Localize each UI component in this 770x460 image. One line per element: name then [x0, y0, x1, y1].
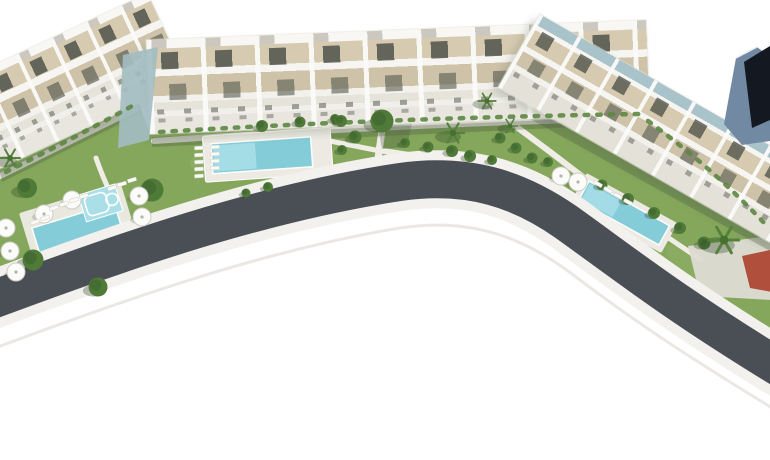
tree [345, 131, 362, 144]
hedge-row [160, 114, 640, 132]
sun-lounger [210, 159, 219, 163]
tree [484, 155, 497, 165]
sun-lounger [194, 160, 203, 164]
sun-lounger [210, 145, 219, 149]
tree [491, 133, 505, 144]
tree [11, 178, 37, 198]
sun-umbrella [0, 219, 15, 237]
tree [260, 182, 273, 192]
sun-umbrella [0, 242, 19, 260]
hedge-row [6, 106, 132, 172]
palm-tree [435, 124, 464, 144]
tree [540, 157, 553, 167]
tree [364, 110, 394, 133]
teal-wall [118, 47, 158, 148]
palm-tree [497, 119, 517, 133]
tree [419, 142, 433, 153]
sun-lounger [194, 167, 203, 171]
tree [252, 120, 268, 132]
sun-lounger [107, 185, 117, 191]
sun-lounger [613, 192, 623, 200]
sun-umbrella [549, 167, 570, 185]
palm-tree [700, 227, 739, 253]
sun-lounger [210, 152, 219, 156]
tree [397, 138, 410, 148]
tree [507, 143, 521, 154]
tree [644, 207, 660, 219]
sun-lounger [49, 205, 59, 211]
tree [442, 145, 458, 157]
sun-lounger [194, 153, 203, 157]
tree [523, 153, 537, 164]
tree [83, 278, 108, 297]
sun-lounger [210, 166, 219, 170]
corner-tower [724, 46, 770, 145]
sun-lounger [79, 193, 89, 199]
tree [460, 150, 476, 162]
palm-tree [473, 93, 496, 109]
sun-lounger [117, 181, 127, 187]
tree [239, 189, 251, 198]
sun-lounger [30, 219, 40, 225]
sun-lounger [127, 177, 137, 183]
tree [670, 222, 686, 234]
tree [291, 117, 305, 128]
sun-lounger [603, 186, 613, 194]
sun-umbrella [4, 263, 25, 281]
sun-lounger [194, 174, 203, 178]
sun-lounger [194, 146, 203, 150]
aerial-render [0, 0, 770, 460]
sun-umbrella [127, 187, 148, 205]
props-layer [0, 0, 770, 460]
sun-umbrella [130, 208, 151, 226]
tree [334, 145, 347, 155]
